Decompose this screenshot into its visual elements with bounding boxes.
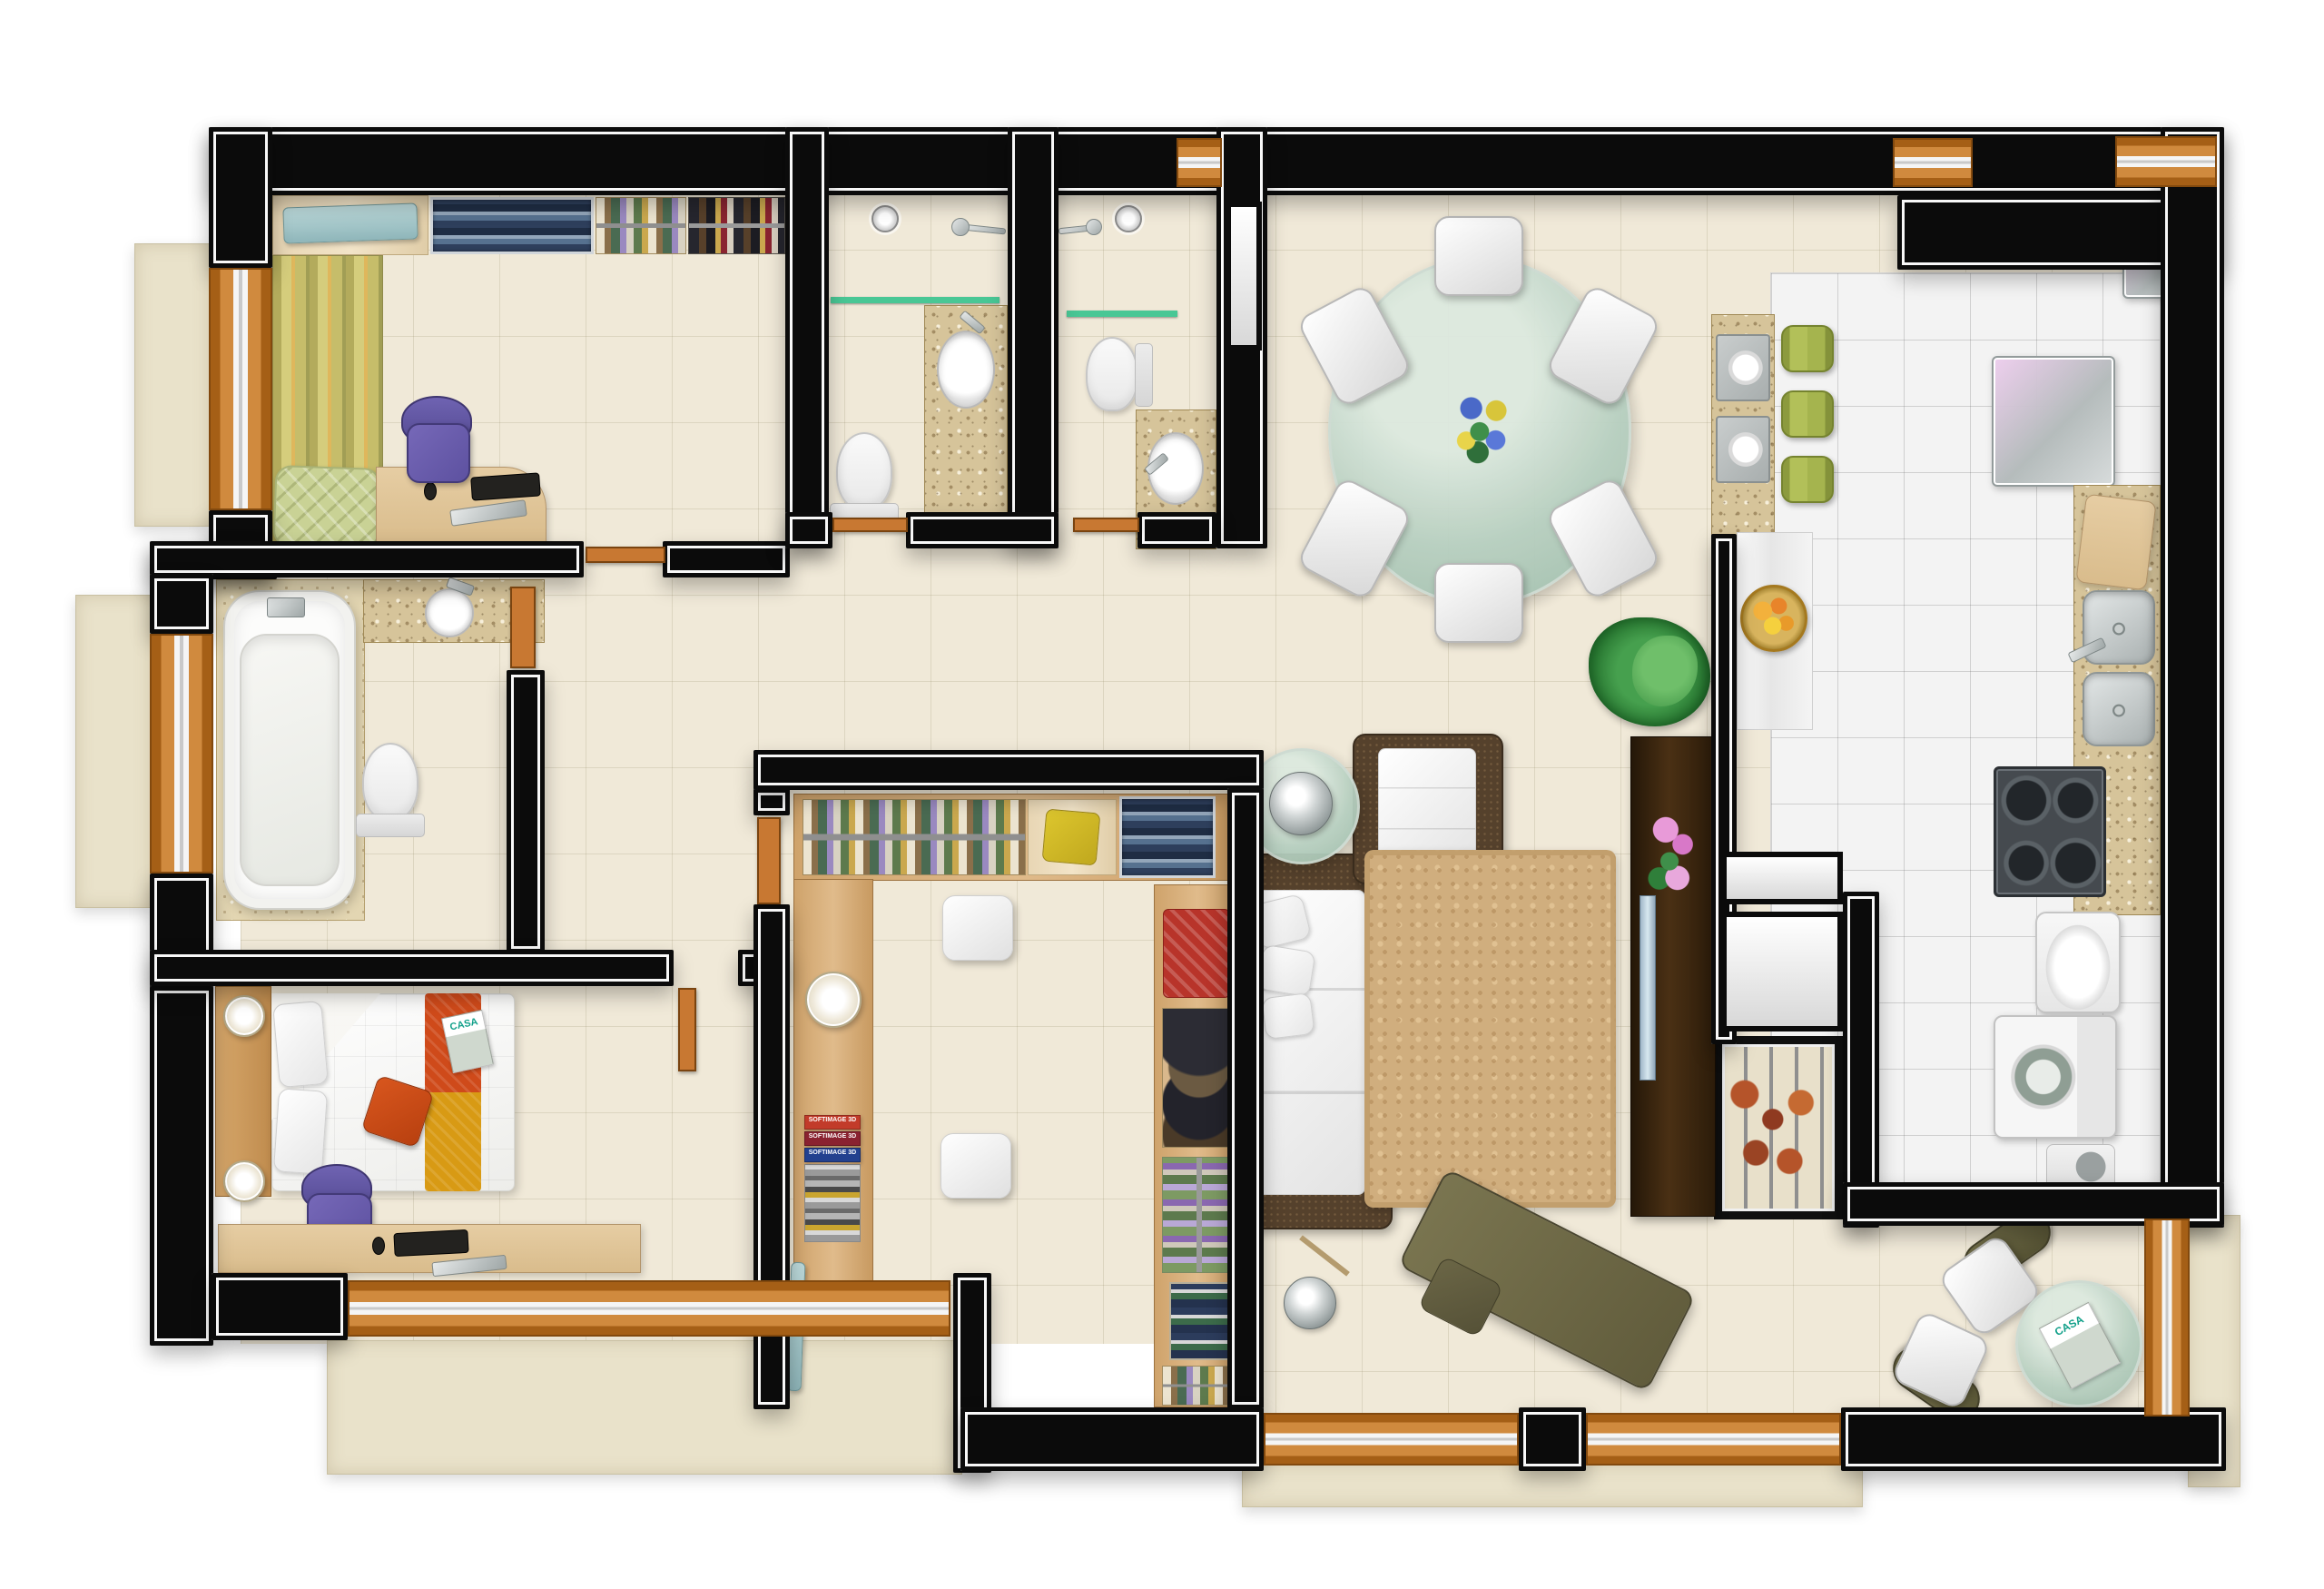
book-spine-3: SOFTIMAGE 3D	[804, 1148, 861, 1162]
sill-bedroom1-left	[134, 243, 211, 527]
book-spine-1: SOFTIMAGE 3D	[804, 1115, 861, 1130]
door-bath2	[1073, 518, 1139, 532]
wall-bath2-bottom	[1137, 512, 1216, 548]
duct-shaft-kitchen-2	[1721, 912, 1843, 1031]
toilet-bowl-bath1	[836, 432, 892, 510]
place-setting-1	[1716, 334, 1770, 401]
bathtub-inner	[240, 634, 340, 886]
tv	[1640, 895, 1656, 1081]
barbecue-grill	[1714, 1036, 1843, 1219]
closet-hanging-multicolor	[803, 799, 1026, 875]
wardrobe-hanging-light	[596, 197, 686, 254]
bar-stool-3	[1781, 456, 1834, 503]
washing-machine	[1994, 1015, 2117, 1139]
window-terrace-right	[2144, 1219, 2190, 1416]
bar-stool-2	[1781, 390, 1834, 438]
wall-bedroom1-bottom-a	[150, 541, 584, 577]
wall-closet-right	[1227, 788, 1264, 1409]
bed-pillow-bottom	[273, 1088, 328, 1175]
sofa-pillow-3	[1261, 992, 1315, 1040]
sink-bath1	[937, 331, 995, 409]
wall-right	[2161, 127, 2224, 1228]
ironing-board	[282, 202, 418, 243]
place-setting-2	[1716, 416, 1770, 483]
fridge	[1992, 356, 2115, 487]
nightstand-lamp-top	[223, 995, 265, 1037]
window-top-right	[2115, 136, 2217, 187]
duct-shaft-baths	[1226, 202, 1262, 350]
wall-bath-left-1	[150, 574, 213, 634]
ottoman-bottom	[940, 1133, 1011, 1199]
toilet-bowl-bath2	[1086, 337, 1138, 411]
door-lintel-kitchen	[1893, 138, 1973, 187]
window-bedroom2-bottom	[348, 1280, 950, 1337]
wardrobe-hanging-dark	[688, 197, 785, 254]
wall-bedroom2-bottom	[212, 1273, 348, 1340]
area-rug	[1364, 850, 1616, 1208]
closet-yellow-shirt	[1042, 808, 1101, 865]
sofa-pillow-2	[1256, 944, 1315, 997]
wall-bottom-pillar	[1519, 1407, 1586, 1471]
ceiling-light-bath1	[871, 205, 899, 232]
door-bedroom2	[678, 988, 696, 1071]
book-spine-2: SOFTIMAGE 3D	[804, 1131, 861, 1146]
wall-left-1	[209, 127, 272, 268]
wall-bedroom1-bottom-b	[663, 541, 790, 577]
window-living-bottom-2	[1586, 1413, 1841, 1466]
dining-chair-north	[1434, 216, 1523, 296]
shower-head-bath1	[951, 218, 970, 236]
wall-bedroom2-top-a	[150, 950, 674, 986]
wall-baths-bottom-b	[906, 512, 1059, 548]
cutting-board	[2075, 494, 2156, 591]
stove	[1994, 766, 2106, 897]
door-masterbath	[510, 587, 536, 668]
glass-shelf-bath2	[1067, 311, 1177, 317]
wall-closet-top	[753, 750, 1264, 790]
kitchen-sink-2	[2083, 672, 2155, 746]
closet-hanging-bottom	[1162, 1366, 1236, 1406]
duct-shaft-kitchen-1	[1721, 852, 1843, 904]
door-bedroom1	[586, 547, 665, 563]
closet-folded-navy	[1169, 1282, 1229, 1360]
floor-plan-canvas: SOFTIMAGE 3DSOFTIMAGE 3DSOFTIMAGE 3DCASA…	[0, 0, 2324, 1550]
shower-head-bath2	[1086, 219, 1102, 235]
bed-pillow-top	[272, 1001, 329, 1088]
toilet-tank-master	[356, 814, 425, 837]
closet-jeans-shelf	[1119, 796, 1216, 878]
toilet-bowl-master	[362, 743, 419, 821]
glass-shelf-bath1	[831, 297, 1000, 303]
door-closet	[757, 817, 781, 904]
sink-master	[425, 588, 474, 637]
nightstand-lamp-bottom	[223, 1160, 265, 1202]
wall-closet-left-stub	[753, 788, 790, 815]
closet-books	[804, 1164, 861, 1242]
window-bedroom1-left	[209, 268, 272, 510]
window-living-bottom-1	[1264, 1413, 1519, 1466]
green-quilted-pillow	[272, 465, 380, 550]
closet-hanging-green	[1162, 1157, 1236, 1273]
wardrobe-folded-shelf	[430, 197, 594, 254]
sill-masterbath-left	[75, 595, 152, 908]
tub-faucet	[267, 597, 305, 617]
wall-masterbath-right	[507, 670, 545, 953]
door-lintel-hall	[1177, 138, 1222, 187]
window-masterbath-left	[150, 634, 213, 873]
laundry-sink	[2035, 912, 2121, 1013]
closet-dark-hats	[1162, 1008, 1236, 1148]
office-chair-seat	[407, 423, 470, 483]
kitchen-sink-1	[2083, 590, 2155, 665]
balcony-bedroom2	[327, 1340, 962, 1475]
decor-bowl	[1269, 772, 1333, 835]
toilet-tank-bath2	[1135, 343, 1153, 407]
wall-bottom-a	[960, 1407, 1264, 1471]
wall-service-left	[1843, 892, 1879, 1228]
floor-lamp-base	[1284, 1277, 1336, 1329]
wall-bath1-left	[785, 127, 829, 547]
wall-bedroom2-left	[150, 986, 213, 1346]
keyboard	[470, 472, 541, 500]
closet-lamp	[805, 972, 862, 1028]
dining-chair-south	[1434, 563, 1523, 643]
ottoman-top	[942, 895, 1013, 961]
keyboard-bedroom	[393, 1229, 468, 1257]
ceiling-light-bath2	[1115, 205, 1142, 232]
door-bath1	[832, 518, 908, 532]
bar-stool-1	[1781, 325, 1834, 372]
fruit-basket	[1740, 585, 1807, 652]
closet-red-towel	[1163, 909, 1230, 998]
mouse	[424, 482, 437, 500]
wall-baths-divider	[1008, 127, 1059, 548]
wall-bottom-b	[1841, 1407, 2226, 1471]
wall-bath1-bottom-a	[785, 512, 832, 548]
mouse-bedroom	[372, 1237, 385, 1255]
